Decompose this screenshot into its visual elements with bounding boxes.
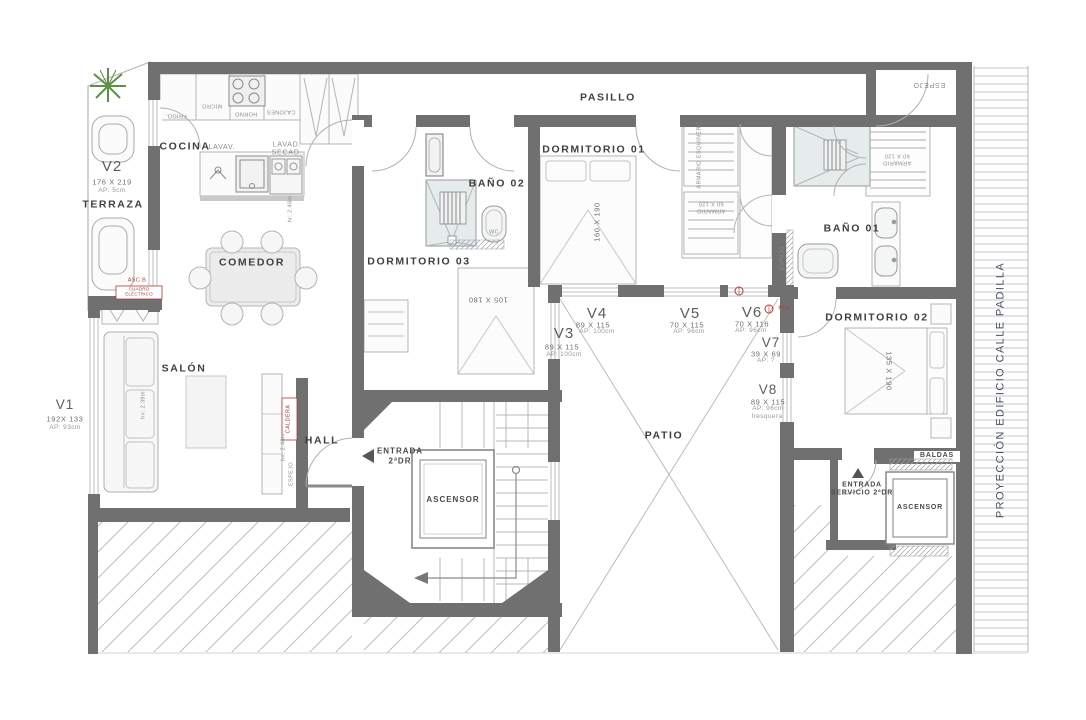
closet-dorm02 [866, 122, 930, 196]
dining-table [189, 231, 317, 325]
vanity-bano01 [872, 202, 900, 286]
stairwell [412, 402, 548, 603]
toilet-bano02 [482, 206, 506, 242]
tub-bano01 [798, 244, 838, 278]
patio-cross [560, 299, 778, 650]
mirror-strip [786, 230, 793, 288]
floor-plan: V2 176 X 219 AP: 5cm TERRAZA COCINA FRIG… [0, 0, 1086, 720]
floor-plan-drawing [0, 0, 1086, 720]
electrical-panel-box [116, 286, 162, 299]
bed-dorm02 [845, 304, 951, 438]
elevator-service [886, 472, 954, 544]
service-area [886, 459, 954, 556]
sofa-icon [104, 332, 158, 492]
shower-bano01 [794, 126, 870, 186]
bathroom-fixtures [426, 126, 900, 288]
washer-dryer-icon [270, 156, 302, 194]
bed-dorm03 [458, 268, 534, 374]
closet-dorm01 [682, 120, 772, 258]
boiler-box [282, 398, 297, 440]
elevator-main [412, 450, 494, 548]
terraza-area [88, 62, 150, 310]
shelf-bottom [890, 546, 948, 556]
shelf-top [890, 459, 952, 470]
shower-bano02 [426, 180, 476, 246]
entry-marker-service [852, 468, 864, 478]
bed-dorm01 [540, 156, 636, 284]
cooktop-icon [229, 76, 265, 106]
